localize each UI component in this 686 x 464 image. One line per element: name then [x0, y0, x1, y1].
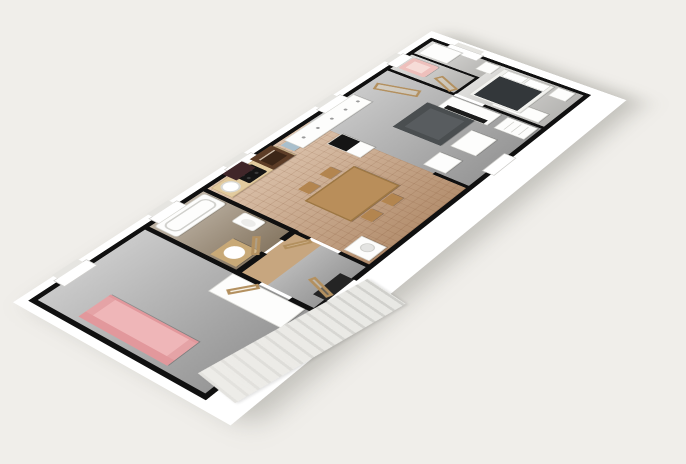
toilet-bowl — [238, 217, 258, 228]
vanity-basin — [219, 244, 249, 262]
floorplan-render-viewport — [0, 0, 686, 464]
pink-armchair-cushion — [406, 61, 431, 73]
oven-door — [259, 150, 287, 166]
washer-door — [357, 242, 378, 254]
apartment-plan-3d — [28, 38, 591, 401]
door-bathroom[interactable] — [251, 236, 261, 255]
